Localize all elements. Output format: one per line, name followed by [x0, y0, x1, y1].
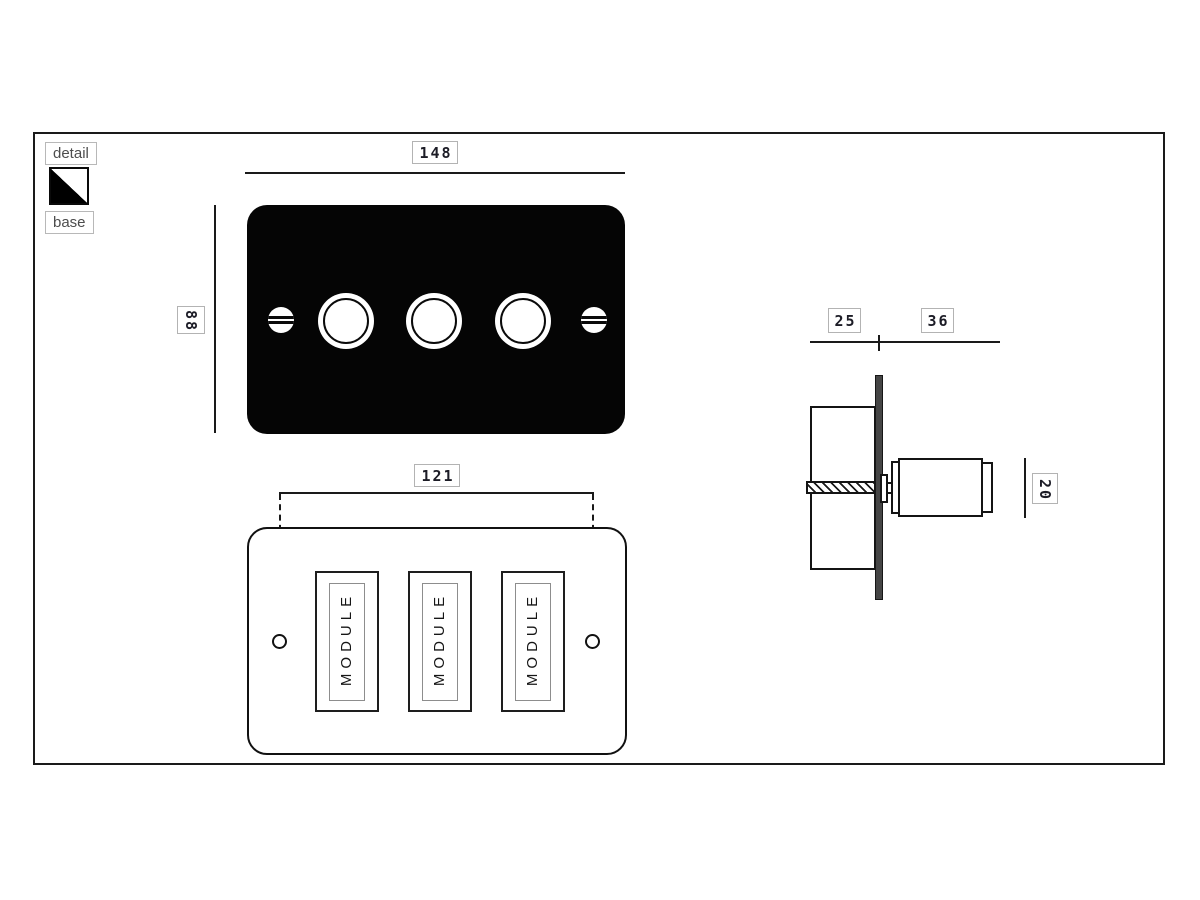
- dim-knob-projection-label: 36: [921, 308, 954, 333]
- dim-depth-tick: [878, 335, 880, 351]
- technical-drawing-page: detail base 148 88: [0, 0, 1200, 900]
- dim-depth-line: [810, 341, 1000, 343]
- knob-body-side: [898, 458, 983, 517]
- fixing-screw-side: [806, 481, 876, 494]
- dim-box-depth-label: 25: [828, 308, 861, 333]
- dim-knob-height-label: 20: [1032, 473, 1058, 504]
- side-view: 25 36 20: [0, 0, 1200, 900]
- knob-cap-side: [981, 462, 993, 513]
- dim-knob-height-line: [1024, 458, 1026, 518]
